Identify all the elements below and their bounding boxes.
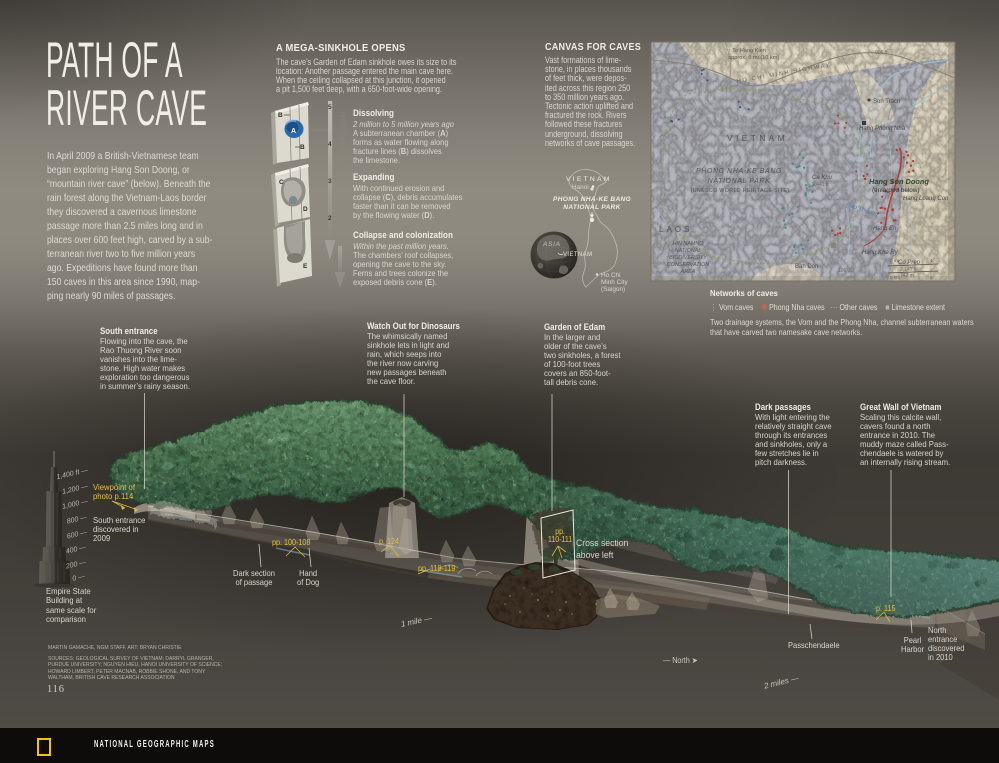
svg-text:800 —: 800 —: [66, 514, 89, 526]
svg-text:2: 2: [328, 215, 332, 222]
svg-text:ASIA: ASIA: [542, 241, 561, 248]
svg-text:E: E: [303, 263, 308, 270]
svg-text:400 —: 400 —: [65, 544, 88, 556]
svg-text:VIETNAM: VIETNAM: [566, 176, 612, 183]
svg-text:0 —: 0 —: [72, 573, 87, 583]
svg-text:D: D: [303, 206, 308, 213]
svg-text:A: A: [291, 128, 296, 135]
svg-text:Ho Chi: Ho Chi: [601, 272, 621, 279]
svg-text:1,200 —: 1,200 —: [62, 483, 90, 496]
svg-text:1,000 —: 1,000 —: [62, 498, 90, 511]
svg-text:5: 5: [328, 104, 332, 111]
svg-text:NATIONAL PARK: NATIONAL PARK: [563, 204, 621, 211]
svg-text:B: B: [278, 112, 283, 119]
svg-text:PHONG NHA-KE BANG: PHONG NHA-KE BANG: [553, 196, 631, 203]
svg-text:Hanoi: Hanoi: [572, 184, 589, 191]
svg-text:B: B: [300, 144, 305, 151]
svg-text:Million years ago: Million years ago: [339, 112, 346, 173]
svg-text:1,400 ft —: 1,400 ft —: [56, 467, 90, 481]
svg-text:C: C: [279, 179, 284, 186]
svg-text:600 —: 600 —: [66, 529, 89, 541]
svg-text:(Saigon): (Saigon): [601, 286, 625, 293]
svg-text:VIETNAM: VIETNAM: [563, 252, 592, 258]
svg-text:Minh City: Minh City: [601, 279, 628, 286]
svg-text:4: 4: [328, 141, 332, 148]
svg-text:200 —: 200 —: [64, 559, 88, 571]
svg-text:3: 3: [328, 178, 332, 185]
